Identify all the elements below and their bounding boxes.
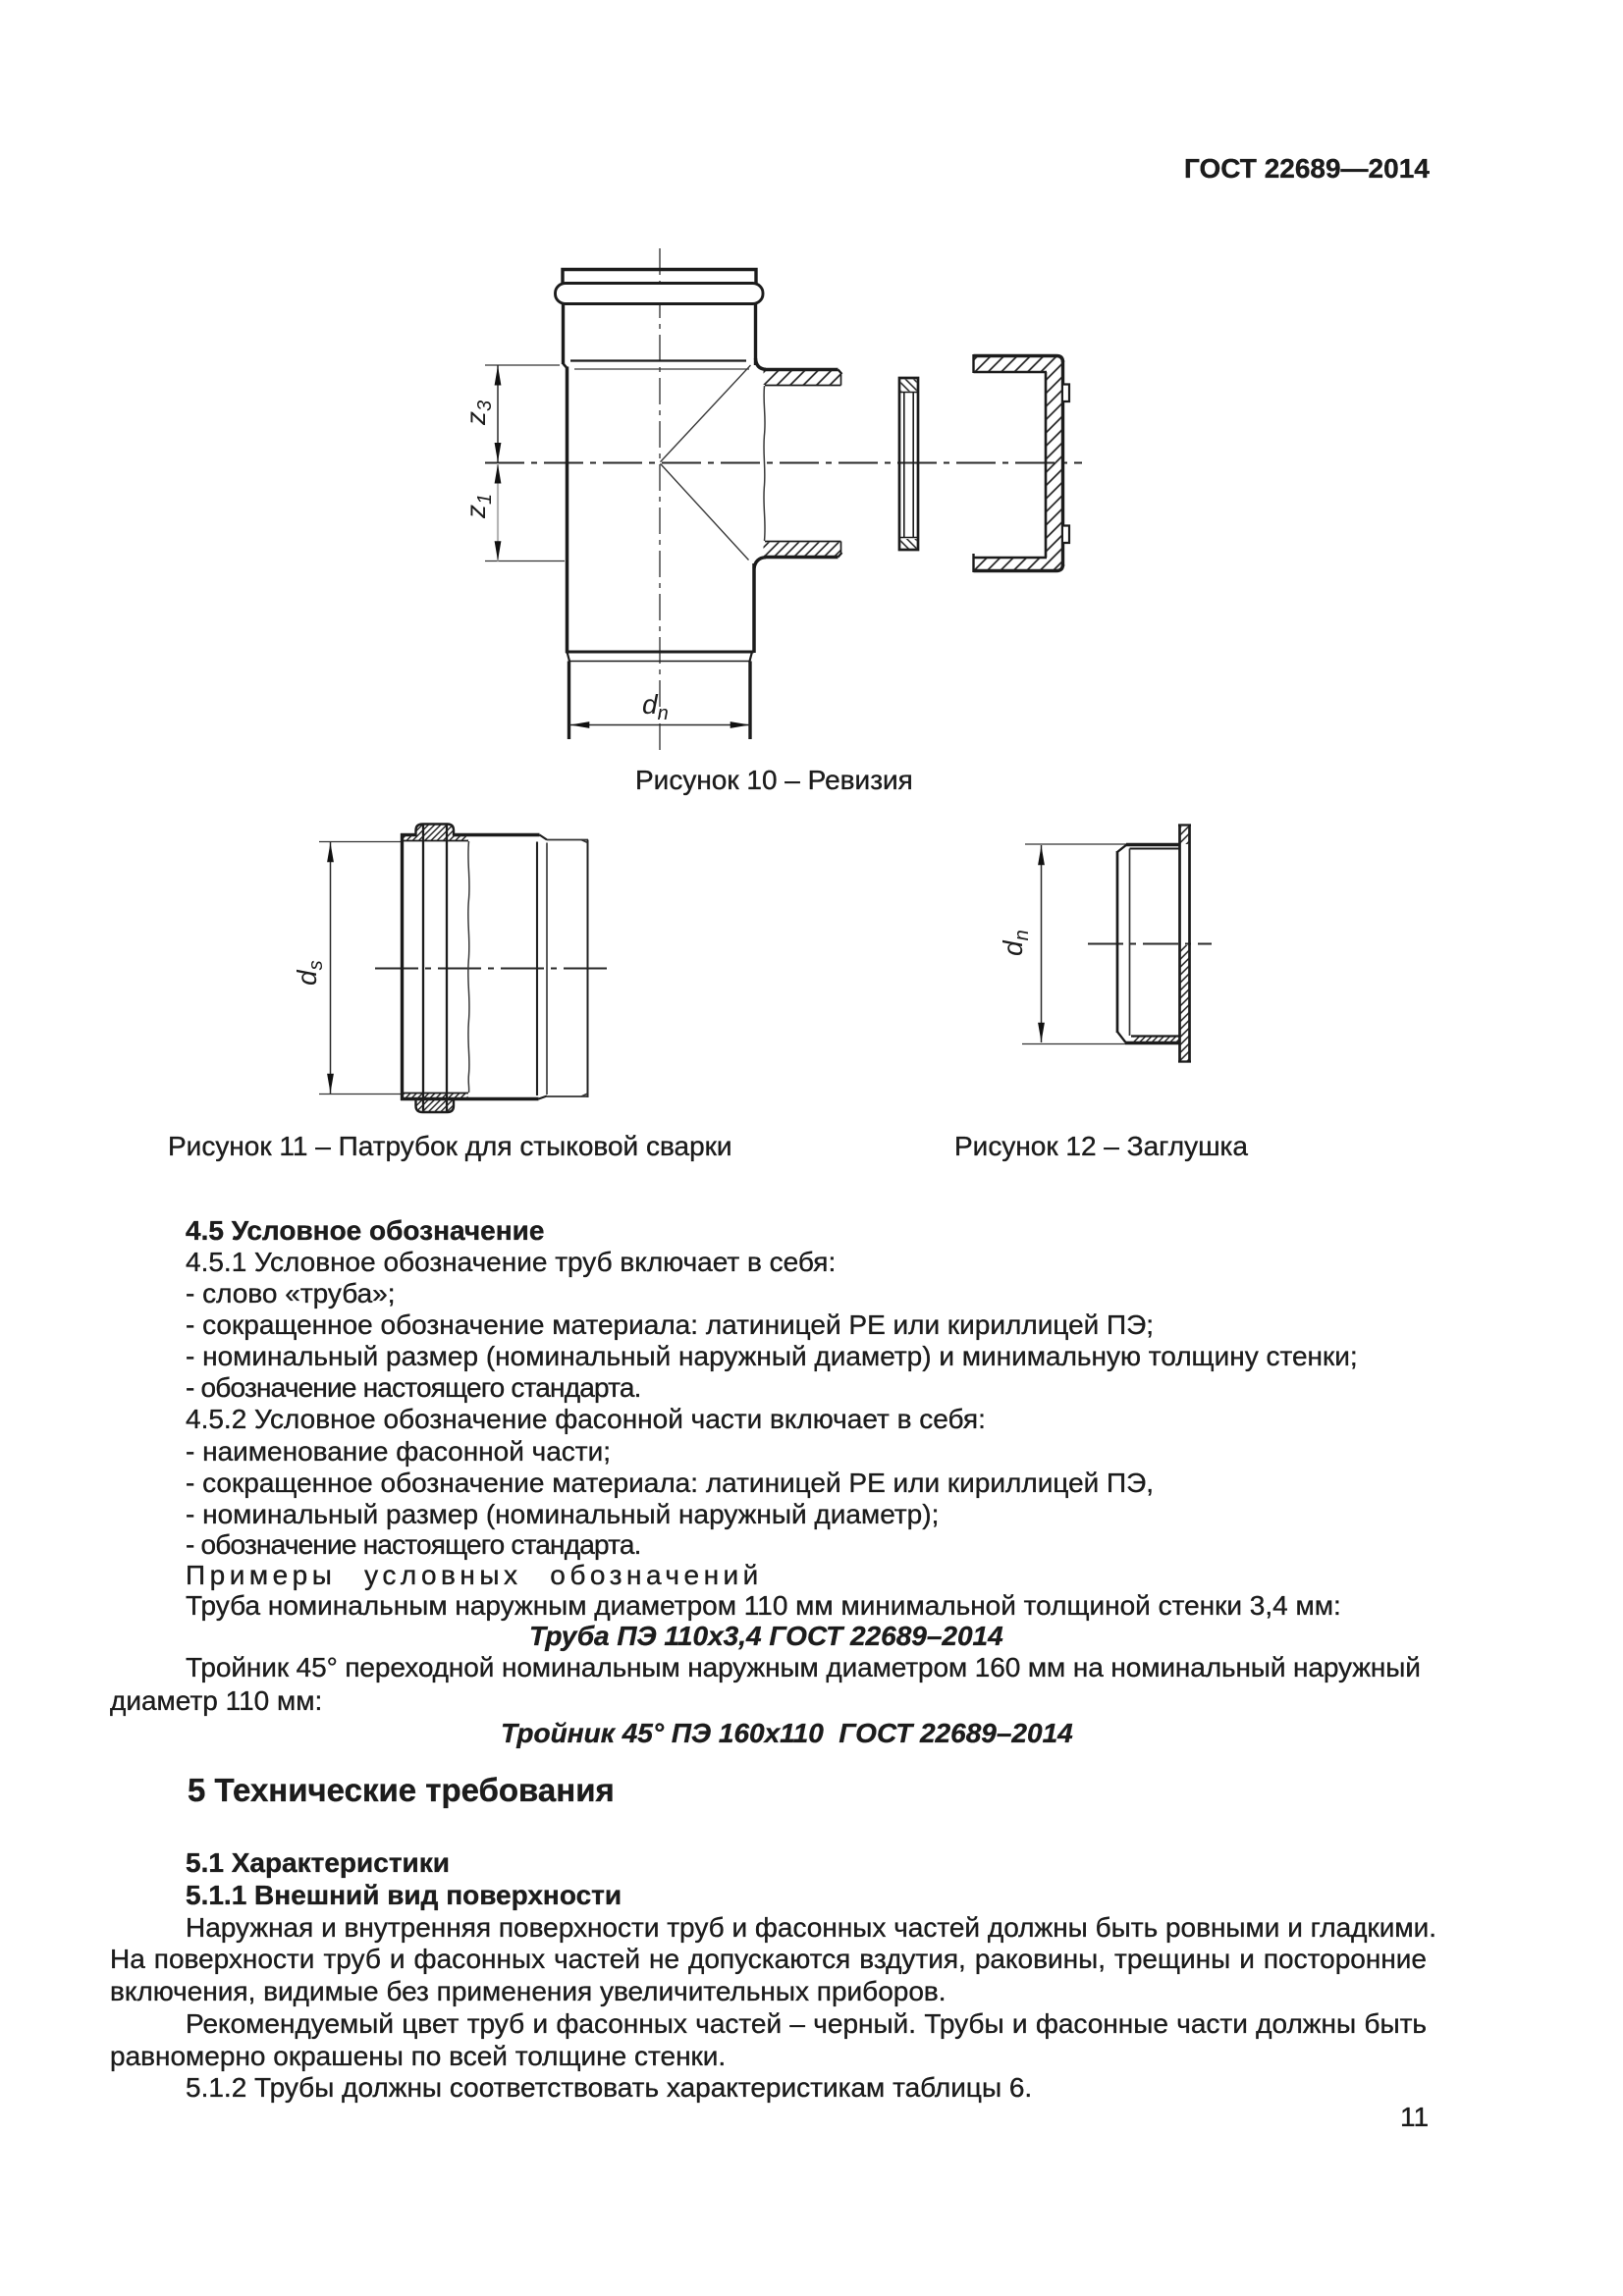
- svg-text:z3: z3: [460, 400, 496, 426]
- svg-text:ds: ds: [292, 960, 327, 986]
- svg-text:z1: z1: [460, 494, 496, 519]
- svg-text:dn: dn: [998, 930, 1033, 956]
- svg-text:dn: dn: [642, 689, 669, 724]
